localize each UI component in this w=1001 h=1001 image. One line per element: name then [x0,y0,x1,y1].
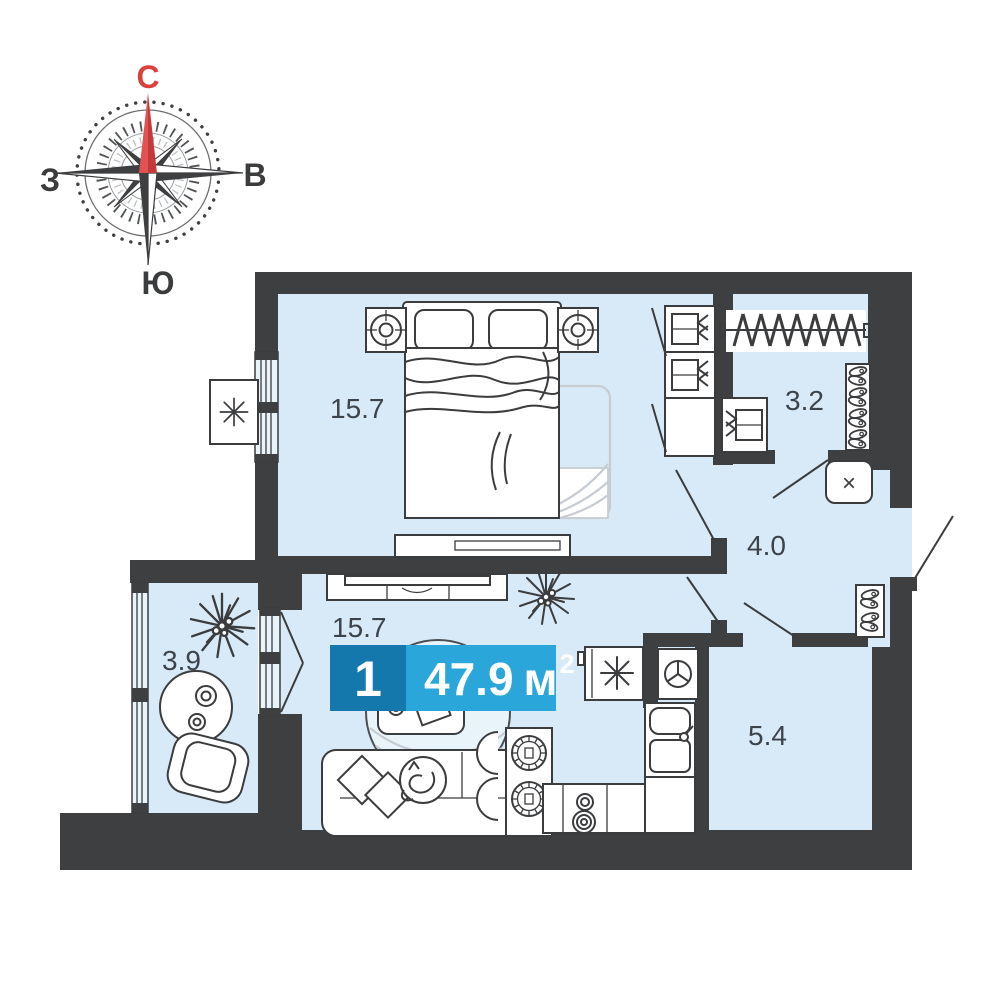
room-area-label-kitchen-living: 15.7 [332,612,387,643]
wall-bedroom-living [278,556,722,574]
closet-shelf-unit [722,398,767,452]
wall-right-closet-thick [868,272,912,470]
entrance-door-swing [912,516,953,583]
compass-label-west: З [40,162,60,198]
wall-top [258,272,912,294]
entrance-threshold [890,508,912,584]
double-bed [403,302,561,518]
balcony-table [160,671,232,743]
plate-icon [512,736,546,770]
room-area-label-closet: 3.2 [785,385,824,416]
kitchen-sink [645,703,695,777]
room-area-label-bedroom: 15.7 [330,393,385,424]
compass-label-north: С [136,59,159,95]
fridge-icon [601,657,633,689]
badge-total-area: 47.9м2 [424,649,575,705]
nightstand-left [366,308,406,352]
room-area-label-balcony: 3.9 [162,645,201,676]
wall-stub-bedroom-door [711,538,727,574]
washing-machine [658,649,698,699]
cat [400,757,446,803]
compass-label-south: Ю [142,265,175,301]
hanger-rail [720,310,869,352]
entrance-door-jamb [890,577,917,591]
total-area-badge: 1 47.9м2 [330,645,575,711]
badge-area-value: 47.9 [424,653,514,705]
tv [345,576,490,585]
fridge [578,647,643,700]
compass-rose: С Ю З В [40,59,267,301]
air-conditioner-icon [220,398,247,425]
wall-living-balcony-lower [258,714,302,830]
room-area-label-hallway: 4.0 [747,530,786,561]
balcony-glazing [132,583,148,813]
hallway-shoe-rack [856,585,884,637]
wall-left-upper [255,272,278,352]
nightstand-right [558,308,598,352]
water-heater-icon: × [842,470,856,497]
air-conditioner-unit [210,380,258,444]
badge-rooms-count: 1 [354,651,382,707]
compass-label-east: В [243,157,266,193]
floor-plan-canvas: С Ю З В [0,0,1001,1001]
kitchen-counter [543,775,695,833]
wall-right-bathroom-thick [872,647,912,830]
tv-console [327,574,507,600]
wall-balcony-top [130,560,258,583]
bathroom-floor [709,647,872,830]
compass-cardinal-arms [55,93,243,265]
closet-shoe-rack [846,364,870,450]
pillow [489,310,547,350]
badge-area-superscript: 2 [560,649,575,679]
wall-left-mid [255,462,278,568]
bedroom-dresser [395,535,570,557]
wall-bottom-balcony [60,813,258,870]
plate-icon [512,782,546,816]
water-heater: × [826,461,872,503]
badge-area-unit: м [524,653,558,705]
room-area-label-bathroom: 5.4 [748,720,787,751]
pillow [415,310,473,350]
wall-kitchen-niche-left [643,633,658,708]
